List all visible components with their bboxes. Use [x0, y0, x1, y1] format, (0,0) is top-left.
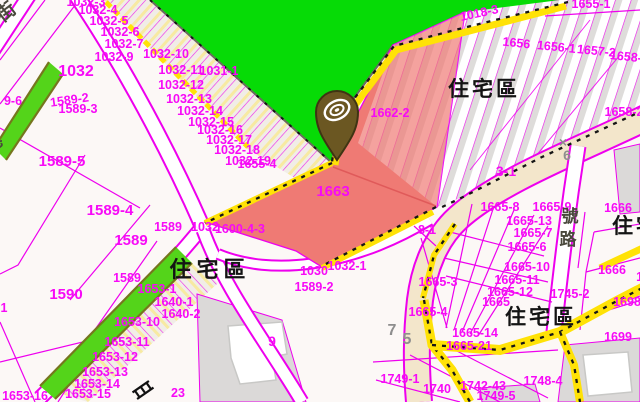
parcel-label: 1658-2	[605, 105, 640, 119]
parcel-label: 1665-3	[419, 275, 458, 289]
parcel-label: 1589-5	[39, 153, 86, 170]
parcel-label: 1665-8	[481, 200, 520, 214]
parcel-label: 1655-4	[238, 157, 277, 171]
parcel-label: 1653-10	[114, 315, 160, 329]
parcel-label: 1032-1	[328, 259, 367, 273]
parcel-label: 1032-12	[158, 78, 204, 92]
section-mark-label: 6	[563, 147, 571, 163]
section-mark-label: 5	[403, 331, 412, 348]
parcel-label: 1749-1	[381, 372, 420, 386]
parcel-label: 1590	[49, 286, 82, 303]
parcel-label: 1745-2	[551, 287, 590, 301]
zone-label: 住宅區	[169, 257, 250, 282]
zone-label: 住宅	[612, 214, 640, 238]
parcel-label: 1665-10	[504, 260, 550, 274]
parcel-label: 1749-5	[477, 389, 516, 402]
parcel-label: 1653-1	[138, 282, 177, 296]
parcel-label: 3-1	[496, 163, 516, 179]
parcel-label: 1653-12	[92, 350, 138, 364]
parcel-label: 1662-2	[371, 106, 410, 120]
parcel-label: 1031-1	[200, 64, 239, 78]
parcel-label: 1665-6	[508, 240, 547, 254]
parcel-label: 1653-16	[2, 389, 48, 402]
parcel-label: 9	[268, 333, 276, 349]
parcel-label: 1032-11	[158, 63, 203, 77]
zone-label: 住宅區	[448, 77, 520, 101]
parcel-label: 1665-7	[514, 226, 553, 240]
parcel-label: 1740	[423, 382, 451, 396]
road-name-label: 號	[562, 207, 579, 226]
parcel-label: 1589	[114, 232, 147, 249]
parcel-label: 1748-4	[524, 374, 563, 388]
parcel-label: 1656	[502, 35, 531, 52]
parcel-label: 1032-9	[95, 50, 134, 64]
parcel-label: 1653-15	[65, 387, 111, 401]
parcel-label: 1665-21	[446, 339, 492, 353]
parcel-label: 1666	[598, 263, 626, 277]
parcel-label: 1665-4	[409, 305, 448, 319]
parcel-label: 1589	[154, 220, 182, 234]
parcel-label: 1666	[604, 201, 632, 215]
parcel-label: 1589-3	[59, 102, 98, 116]
parcel-label: 1032-10	[143, 47, 189, 61]
section-mark-label: 7	[388, 322, 397, 339]
parcel-label: 1	[1, 301, 8, 315]
zone-label: 住宅區	[505, 305, 577, 329]
parcel-label: 1030	[300, 264, 328, 278]
parcel-label: 8-1	[418, 223, 436, 237]
parcel-label: 1698	[613, 295, 640, 309]
cadastral-map-svg[interactable]: 1032-31032-41032-51032-61032-71032-91032…	[0, 0, 640, 402]
parcel-label: 1640-2	[162, 307, 201, 321]
parcel-label: 1699	[604, 330, 632, 344]
parcel-label: 1653-11	[104, 335, 149, 349]
parcel-label: 1032-7	[105, 37, 144, 51]
parcel-label: 1600-4-3	[215, 222, 265, 236]
parcel-label: 1666	[636, 270, 640, 284]
parcel-label: 9-6	[4, 94, 22, 108]
parcel-label: 23	[171, 386, 185, 400]
parcel-label: 1663	[316, 183, 349, 200]
parcel-label: 1589-4	[87, 202, 134, 219]
road-name-label: 路	[560, 229, 578, 249]
parcel-label: 1665-14	[452, 326, 498, 340]
parcel-label: 1589-2	[295, 280, 334, 294]
parcel-label: 1032	[58, 63, 94, 80]
map-canvas[interactable]: 1032-31032-41032-51032-61032-71032-91032…	[0, 0, 640, 402]
parcel-label: 1655-1	[572, 0, 611, 11]
